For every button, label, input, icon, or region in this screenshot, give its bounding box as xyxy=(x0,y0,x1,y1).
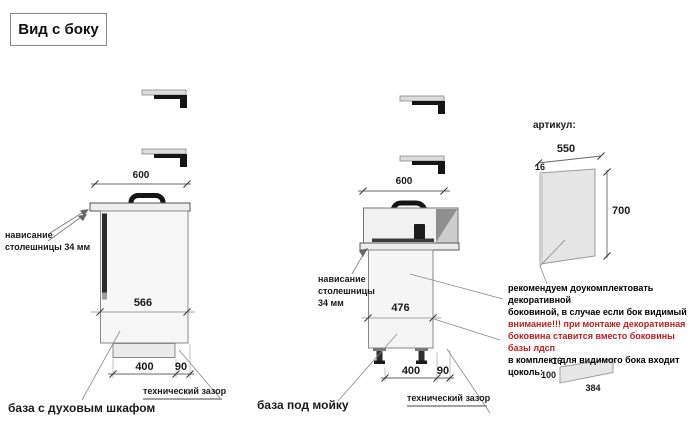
dim-plinth-thickness: 16 xyxy=(546,357,562,367)
door-edge xyxy=(102,214,107,293)
gap-label-oven: технический зазор xyxy=(143,387,226,397)
leg-icon xyxy=(373,348,386,364)
overhang-label-sink: нависание xyxy=(318,275,366,285)
side-panel-drawing xyxy=(535,153,611,285)
leader-line xyxy=(48,211,85,241)
cabinet-body xyxy=(369,250,434,348)
note-line: рекомендуем доукомплектовать декоративно… xyxy=(508,282,700,306)
cabinet-body xyxy=(101,211,189,343)
overhang-label-oven: нависание xyxy=(5,231,53,241)
dim-top-width-sink: 600 xyxy=(359,176,449,187)
mixer-body xyxy=(414,224,425,239)
caption-sink-cabinet: база под мойку xyxy=(257,399,349,412)
caption-oven-cabinet: база с духовым шкафом xyxy=(8,402,155,415)
dim-top-width-oven: 600 xyxy=(91,170,191,181)
dim-gap-sink: 90 xyxy=(433,365,453,377)
page-title: Вид с боку xyxy=(10,13,107,46)
overhang-label-sink: 34 мм xyxy=(318,299,344,309)
wall-bracket-icon xyxy=(400,96,445,114)
note-block: рекомендуем доукомплектовать декоративно… xyxy=(508,282,700,378)
overhang-label-sink: столешницы xyxy=(318,287,375,297)
wall-bracket-icon xyxy=(142,149,187,167)
dim-panel-height: 700 xyxy=(612,205,630,217)
note-warning-line: боковина ставится вместо боковины базы л… xyxy=(508,330,700,354)
side-view-drawing-sheet: Вид с боку 600 нависание столешницы 34 м… xyxy=(0,0,700,428)
panel-edge xyxy=(540,173,543,264)
countertop xyxy=(360,243,459,250)
dim-plinth-oven: 400 xyxy=(113,361,176,373)
plinth xyxy=(113,344,175,358)
leader-line xyxy=(352,253,364,274)
wall-bracket-icon xyxy=(400,156,445,174)
leader-line-to-note xyxy=(434,319,500,340)
note-line: боковиной, в случае если бок видимый xyxy=(508,306,700,318)
dim-plinth-height: 100 xyxy=(534,371,556,381)
leg-icon xyxy=(415,348,428,364)
countertop xyxy=(90,203,190,211)
sink-cabinet-drawing xyxy=(338,188,503,414)
gap-label-sink: технический зазор xyxy=(407,394,490,404)
overhang-label-oven: столешницы 34 мм xyxy=(5,243,90,253)
dim-gap-oven: 90 xyxy=(170,361,192,373)
wall-bracket-icon xyxy=(142,90,187,108)
dim-depth-sink: 476 xyxy=(368,302,433,314)
article-label: артикул: xyxy=(533,120,576,131)
dim-plinth-sink: 400 xyxy=(385,365,437,377)
sink-bottom xyxy=(372,239,434,243)
panel-face xyxy=(540,169,595,264)
dim-panel-thickness: 16 xyxy=(528,163,545,173)
dimension-line-550 xyxy=(538,156,601,163)
arrowhead xyxy=(78,214,87,221)
note-warning-line: внимание!!! при монтаже декоративная xyxy=(508,318,700,330)
dim-panel-width: 550 xyxy=(538,143,594,155)
dim-depth-oven: 566 xyxy=(93,297,193,309)
dim-plinth-width: 384 xyxy=(578,384,608,394)
